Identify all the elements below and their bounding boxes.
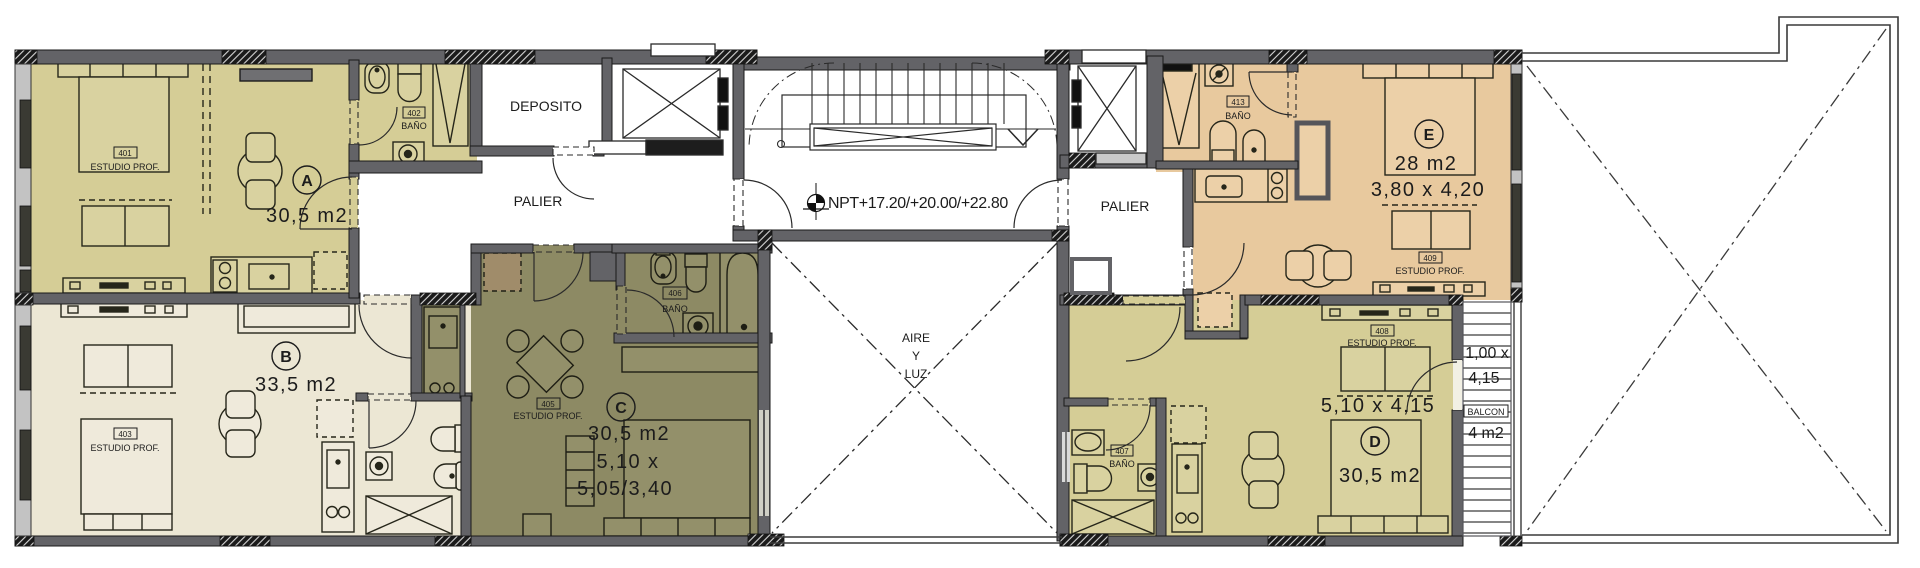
svg-text:408: 408	[1375, 327, 1389, 336]
svg-text:BALCON: BALCON	[1467, 407, 1504, 417]
svg-text:407: 407	[1115, 447, 1129, 456]
svg-text:D: D	[1369, 434, 1381, 451]
svg-text:ESTUDIO PROF.: ESTUDIO PROF.	[90, 162, 159, 172]
svg-text:LUZ: LUZ	[905, 367, 928, 381]
svg-text:30,5 m2: 30,5 m2	[1339, 465, 1421, 487]
svg-text:28 m2: 28 m2	[1395, 153, 1458, 175]
svg-text:PALIER: PALIER	[514, 193, 563, 209]
svg-text:ESTUDIO PROF.: ESTUDIO PROF.	[513, 411, 582, 421]
svg-text:406: 406	[668, 289, 682, 298]
svg-text:E: E	[1424, 127, 1435, 144]
svg-text:BAÑO: BAÑO	[401, 121, 427, 131]
svg-text:ESTUDIO PROF.: ESTUDIO PROF.	[90, 443, 159, 453]
svg-text:NPT+17.20/+20.00/+22.80: NPT+17.20/+20.00/+22.80	[828, 195, 1008, 212]
svg-text:A: A	[301, 173, 313, 190]
svg-text:PALIER: PALIER	[1101, 198, 1150, 214]
svg-text:ESTUDIO PROF.: ESTUDIO PROF.	[1395, 266, 1464, 276]
svg-text:DEPOSITO: DEPOSITO	[510, 98, 582, 114]
svg-text:401: 401	[118, 149, 132, 158]
svg-text:403: 403	[118, 430, 132, 439]
svg-text:4 m2: 4 m2	[1468, 425, 1504, 442]
svg-text:B: B	[280, 349, 292, 366]
svg-text:3,80 x 4,20: 3,80 x 4,20	[1371, 179, 1485, 201]
svg-text:BAÑO: BAÑO	[662, 304, 688, 314]
svg-text:BAÑO: BAÑO	[1109, 459, 1135, 469]
svg-text:4,15: 4,15	[1468, 370, 1499, 387]
svg-text:Y: Y	[912, 349, 920, 363]
svg-text:413: 413	[1231, 98, 1245, 107]
svg-text:402: 402	[407, 109, 421, 118]
svg-text:C: C	[615, 400, 627, 417]
svg-text:5,10 x 4,15: 5,10 x 4,15	[1321, 395, 1435, 417]
svg-text:5,10 x: 5,10 x	[597, 451, 660, 473]
svg-text:33,5 m2: 33,5 m2	[255, 374, 337, 396]
svg-text:405: 405	[541, 400, 555, 409]
svg-text:AIRE: AIRE	[902, 331, 930, 345]
svg-text:30,5 m2: 30,5 m2	[588, 423, 670, 445]
svg-text:ESTUDIO PROF.: ESTUDIO PROF.	[1347, 338, 1416, 348]
svg-text:BAÑO: BAÑO	[1225, 111, 1251, 121]
svg-text:1,00 x: 1,00 x	[1465, 345, 1509, 362]
svg-text:5,05/3,40: 5,05/3,40	[577, 478, 673, 500]
svg-text:30,5 m2: 30,5 m2	[266, 205, 348, 227]
svg-text:409: 409	[1423, 254, 1437, 263]
